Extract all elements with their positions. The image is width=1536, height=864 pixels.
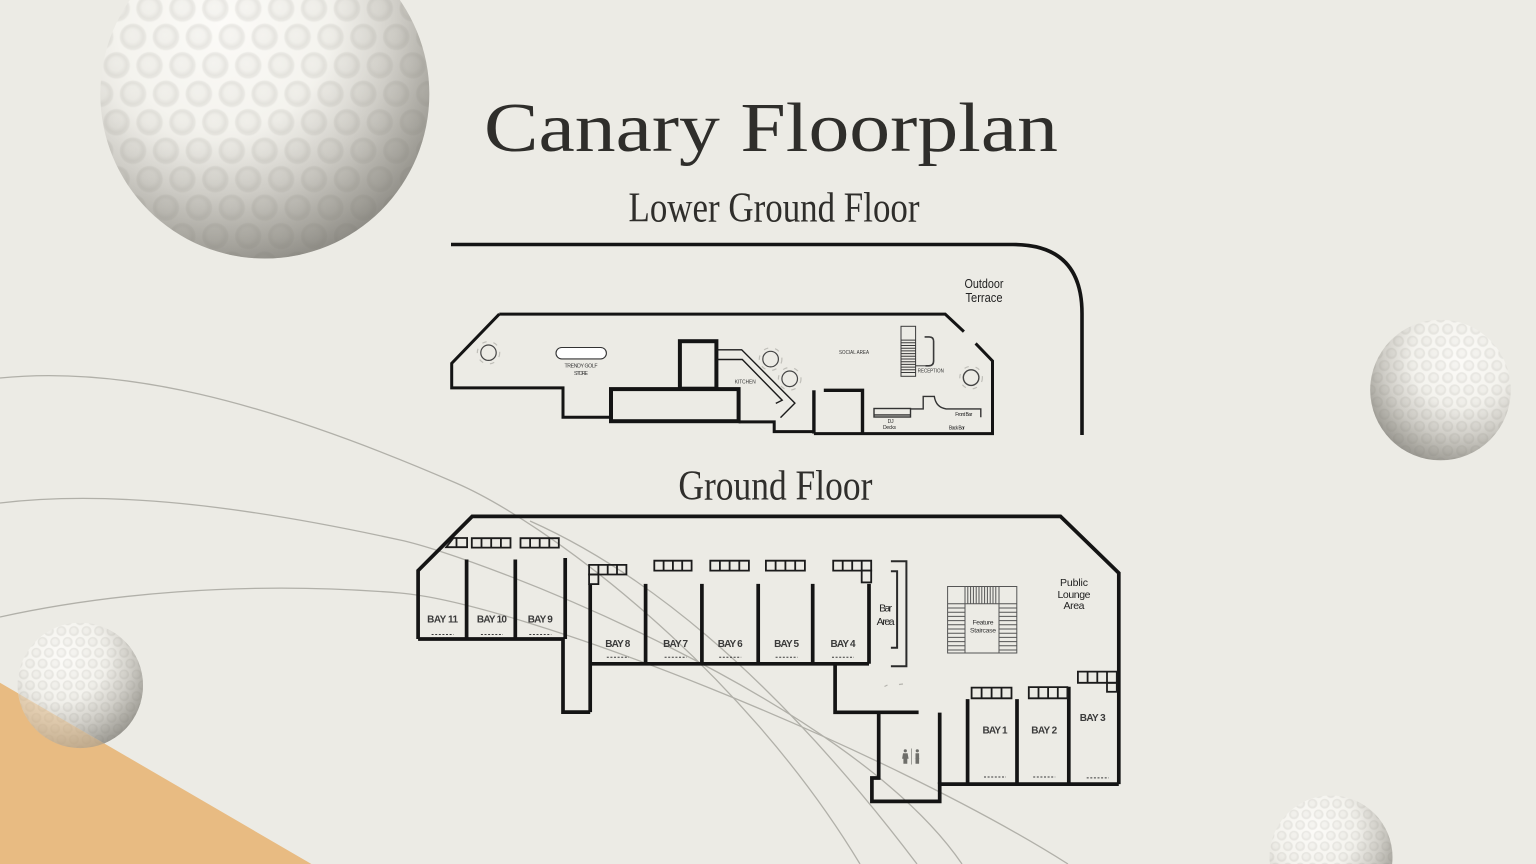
svg-text:Area: Area: [877, 616, 895, 628]
svg-text:SOCIAL AREA: SOCIAL AREA: [839, 350, 869, 356]
svg-text:BAY 9: BAY 9: [528, 615, 553, 626]
svg-text:STORE: STORE: [574, 371, 589, 377]
svg-text:Area: Area: [1064, 600, 1085, 612]
svg-text:KITCHEN: KITCHEN: [735, 379, 756, 385]
svg-text:Lower Ground Floor: Lower Ground Floor: [629, 186, 920, 232]
svg-text:Public: Public: [1060, 577, 1088, 589]
svg-text:Ground Floor: Ground Floor: [678, 464, 872, 510]
svg-text:Decks: Decks: [883, 425, 897, 431]
svg-text:Staircase: Staircase: [970, 628, 996, 635]
svg-text:Terrace: Terrace: [966, 290, 1003, 305]
svg-text:BAY 10: BAY 10: [477, 615, 507, 626]
svg-text:TRENDY GOLF: TRENDY GOLF: [565, 364, 598, 370]
svg-text:BAY 8: BAY 8: [605, 639, 630, 650]
svg-text:BAY 4: BAY 4: [831, 639, 856, 650]
svg-text:Back Bar: Back Bar: [949, 426, 965, 432]
svg-text:Canary Floorplan: Canary Floorplan: [484, 90, 1058, 167]
svg-text:RECEPTION: RECEPTION: [918, 368, 944, 374]
svg-text:BAY 5: BAY 5: [774, 639, 799, 650]
svg-text:BAY 7: BAY 7: [663, 639, 688, 650]
svg-text:BAY 1: BAY 1: [983, 725, 1008, 736]
svg-text:BAY 2: BAY 2: [1031, 725, 1057, 736]
svg-text:Bar: Bar: [879, 603, 893, 615]
svg-text:Outdoor: Outdoor: [965, 276, 1005, 291]
svg-text:BAY 3: BAY 3: [1080, 713, 1106, 724]
svg-text:Feature: Feature: [973, 620, 994, 627]
svg-text:Front Bar: Front Bar: [955, 412, 972, 418]
svg-text:BAY 11: BAY 11: [427, 615, 458, 626]
svg-text:BAY 6: BAY 6: [718, 639, 743, 650]
